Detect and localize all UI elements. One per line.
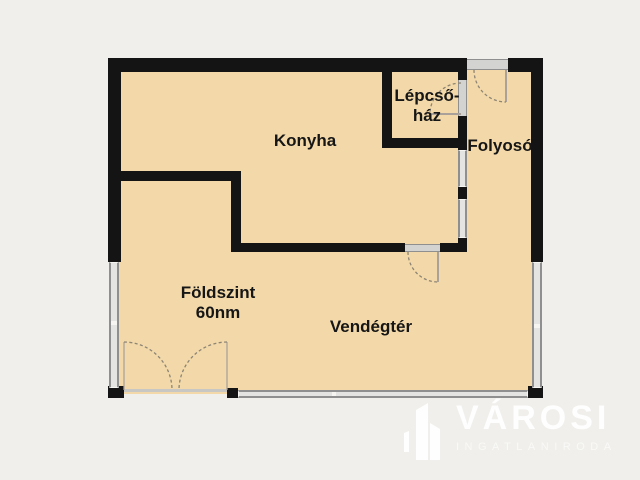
room-label-text: Folyosó xyxy=(450,136,550,156)
floor-info-label: Földszint 60nm xyxy=(158,283,278,323)
wall-top-left-segment xyxy=(108,58,467,72)
door-opening-folyoso-top xyxy=(467,59,508,70)
room-label-text: Konyha xyxy=(245,131,365,151)
door-opening-vendegter xyxy=(405,244,440,252)
room-label-text: Vendégtér xyxy=(311,317,431,337)
entrance-threshold xyxy=(124,389,227,392)
window-right xyxy=(532,262,542,388)
wall-konyha-vertical xyxy=(231,171,241,252)
floorplan-canvas: Konyha Lépcső- ház Folyosó Földszint 60n… xyxy=(0,0,640,480)
wall-right-outer xyxy=(531,58,543,262)
floor-info-line1: Földszint xyxy=(158,283,278,303)
wall-folyoso-left-seg3 xyxy=(458,187,467,199)
room-label-konyha: Konyha xyxy=(245,131,365,151)
watermark-brand: VÁROSI xyxy=(456,400,617,436)
window-mullion xyxy=(534,324,540,328)
wall-konyha-lower-left xyxy=(108,171,241,181)
wall-folyoso-left-seg4 xyxy=(458,238,467,252)
floor-info-line2: 60nm xyxy=(158,303,278,323)
wall-left-outer xyxy=(108,58,121,262)
window-konyha-folyoso-2 xyxy=(458,199,467,238)
window-bottom xyxy=(238,390,528,398)
room-label-vendegter: Vendégtér xyxy=(311,317,431,337)
window-mullion xyxy=(332,392,336,396)
watermark-text: VÁROSI INGATLANIRODA xyxy=(456,400,617,453)
wall-folyoso-left-seg1 xyxy=(458,70,467,80)
room-label-line2: ház xyxy=(377,106,477,126)
watermark-tagline: INGATLANIRODA xyxy=(456,441,617,453)
watermark: VÁROSI INGATLANIRODA xyxy=(398,400,617,460)
room-label-folyoso: Folyosó xyxy=(450,136,550,156)
wall-vendegter-top-left xyxy=(231,243,405,252)
room-label-line1: Lépcső- xyxy=(377,86,477,106)
window-mullion xyxy=(111,321,117,325)
buildings-icon xyxy=(398,400,444,460)
room-label-lepcsohaz: Lépcső- ház xyxy=(377,86,477,126)
wall-bottom-mid-block xyxy=(227,388,238,398)
window-left xyxy=(109,262,119,388)
